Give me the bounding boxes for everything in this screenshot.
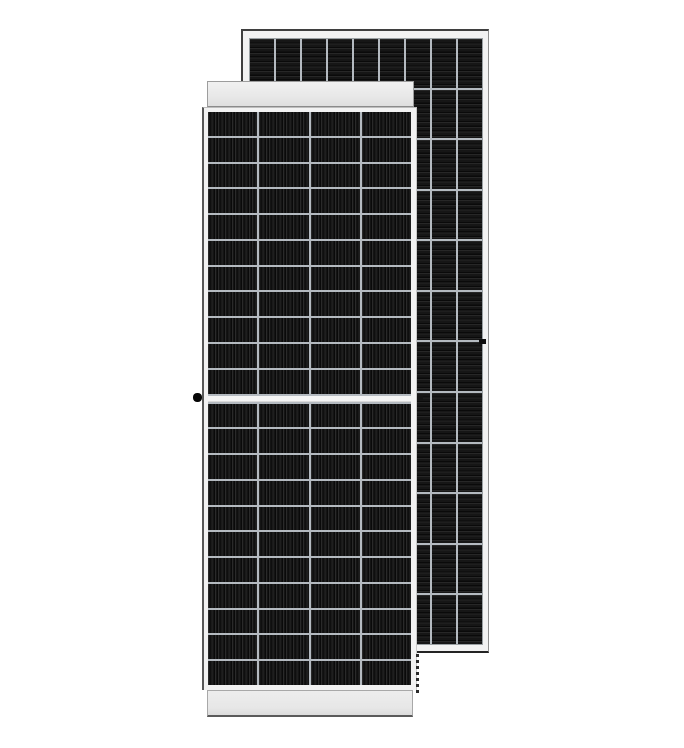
front-panel-top-rail	[207, 81, 414, 107]
pv-cell	[208, 138, 257, 162]
pv-cell	[259, 292, 308, 316]
pv-cell	[362, 138, 411, 162]
pv-cell	[311, 635, 360, 659]
pv-cell	[458, 140, 482, 189]
front-panel-cell-grid	[208, 112, 411, 685]
pv-cell	[432, 342, 456, 391]
pv-cell	[208, 455, 257, 479]
frame-mounting-mark	[479, 339, 486, 344]
pv-cell	[208, 507, 257, 531]
pv-cell	[311, 318, 360, 342]
pv-cell	[458, 494, 482, 543]
pv-cell	[311, 661, 360, 685]
middle-frame-divider	[208, 396, 411, 402]
pv-cell	[208, 164, 257, 188]
pv-cell	[259, 558, 308, 582]
pv-cell	[362, 532, 411, 556]
pv-cell	[259, 635, 308, 659]
pv-cell	[259, 661, 308, 685]
pv-cell	[208, 189, 257, 213]
pv-cell	[362, 429, 411, 453]
pv-cell	[311, 429, 360, 453]
pv-cell	[208, 215, 257, 239]
front-panel-bottom-rail	[207, 690, 413, 717]
pv-cell	[458, 444, 482, 493]
pv-cell	[259, 215, 308, 239]
pv-cell	[259, 344, 308, 368]
pv-cell	[259, 370, 308, 394]
pv-cell	[362, 189, 411, 213]
pv-cell	[458, 393, 482, 442]
pv-cell	[311, 189, 360, 213]
pv-cell	[311, 610, 360, 634]
pv-cell	[432, 90, 456, 139]
pv-cell	[208, 558, 257, 582]
pv-cell	[259, 507, 308, 531]
pv-cell	[432, 595, 456, 644]
pv-cell	[208, 429, 257, 453]
pv-cell	[362, 318, 411, 342]
pv-cell	[311, 215, 360, 239]
pv-cell	[432, 494, 456, 543]
pv-cell	[311, 292, 360, 316]
pv-cell	[311, 584, 360, 608]
pv-cell	[208, 292, 257, 316]
pv-cell	[362, 241, 411, 265]
pv-cell	[311, 241, 360, 265]
pv-cell	[432, 393, 456, 442]
pv-cell	[311, 112, 360, 136]
pv-cell	[311, 138, 360, 162]
pv-cell	[311, 370, 360, 394]
pv-cell	[362, 507, 411, 531]
pv-cell	[208, 267, 257, 291]
pv-cell	[208, 404, 257, 428]
pv-cell	[311, 481, 360, 505]
pv-cell	[259, 429, 308, 453]
pv-cell	[311, 164, 360, 188]
pv-cell	[208, 532, 257, 556]
pv-cell	[458, 545, 482, 594]
pv-cell	[432, 292, 456, 341]
pv-cell	[362, 558, 411, 582]
pv-cell	[259, 138, 308, 162]
pv-cell	[208, 241, 257, 265]
pv-cell	[311, 507, 360, 531]
pv-cell	[259, 455, 308, 479]
pv-cell	[208, 318, 257, 342]
pv-cell	[362, 215, 411, 239]
pv-cell	[362, 661, 411, 685]
pv-cell	[208, 481, 257, 505]
pv-cell	[311, 404, 360, 428]
pv-cell	[458, 342, 482, 391]
pv-cell	[432, 241, 456, 290]
junction-dash-mark	[417, 396, 423, 400]
pv-cell	[259, 267, 308, 291]
pv-cell	[362, 404, 411, 428]
pv-cell	[208, 661, 257, 685]
pv-cell	[311, 344, 360, 368]
pv-cell	[259, 112, 308, 136]
pv-cell	[259, 318, 308, 342]
pv-cell	[311, 455, 360, 479]
pv-cell	[362, 370, 411, 394]
pv-cell	[458, 39, 482, 88]
pv-cell	[259, 164, 308, 188]
pv-cell	[362, 610, 411, 634]
pv-cell	[259, 584, 308, 608]
pv-cell	[259, 241, 308, 265]
pv-cell	[311, 267, 360, 291]
pv-cell	[362, 584, 411, 608]
pv-cell	[458, 191, 482, 240]
pv-cell	[362, 292, 411, 316]
pv-cell	[432, 444, 456, 493]
pv-cell	[458, 241, 482, 290]
pv-cell	[362, 481, 411, 505]
pv-cell	[259, 481, 308, 505]
pv-cell	[432, 140, 456, 189]
pv-cell	[311, 558, 360, 582]
pv-cell	[458, 595, 482, 644]
pv-cell	[362, 635, 411, 659]
pv-cell	[362, 455, 411, 479]
pv-cell	[432, 545, 456, 594]
pv-cell	[208, 370, 257, 394]
pv-cell	[311, 532, 360, 556]
pv-cell	[259, 404, 308, 428]
pv-cell	[362, 164, 411, 188]
pv-cell	[362, 267, 411, 291]
pv-cell	[208, 635, 257, 659]
pv-cell	[208, 344, 257, 368]
solar-panel-product-photo	[0, 0, 684, 748]
pv-cell	[432, 191, 456, 240]
pv-cell	[259, 610, 308, 634]
pv-cell	[362, 112, 411, 136]
pv-cell	[362, 344, 411, 368]
pv-cell	[259, 532, 308, 556]
pv-cell	[259, 189, 308, 213]
pv-cell	[208, 112, 257, 136]
grounding-lug	[193, 393, 202, 402]
pv-cell	[458, 90, 482, 139]
pv-cell	[458, 292, 482, 341]
pv-cell	[208, 584, 257, 608]
pv-cell	[432, 39, 456, 88]
frame-edge-dashes	[416, 654, 419, 693]
front-panel-body	[202, 107, 417, 690]
pv-cell	[208, 610, 257, 634]
